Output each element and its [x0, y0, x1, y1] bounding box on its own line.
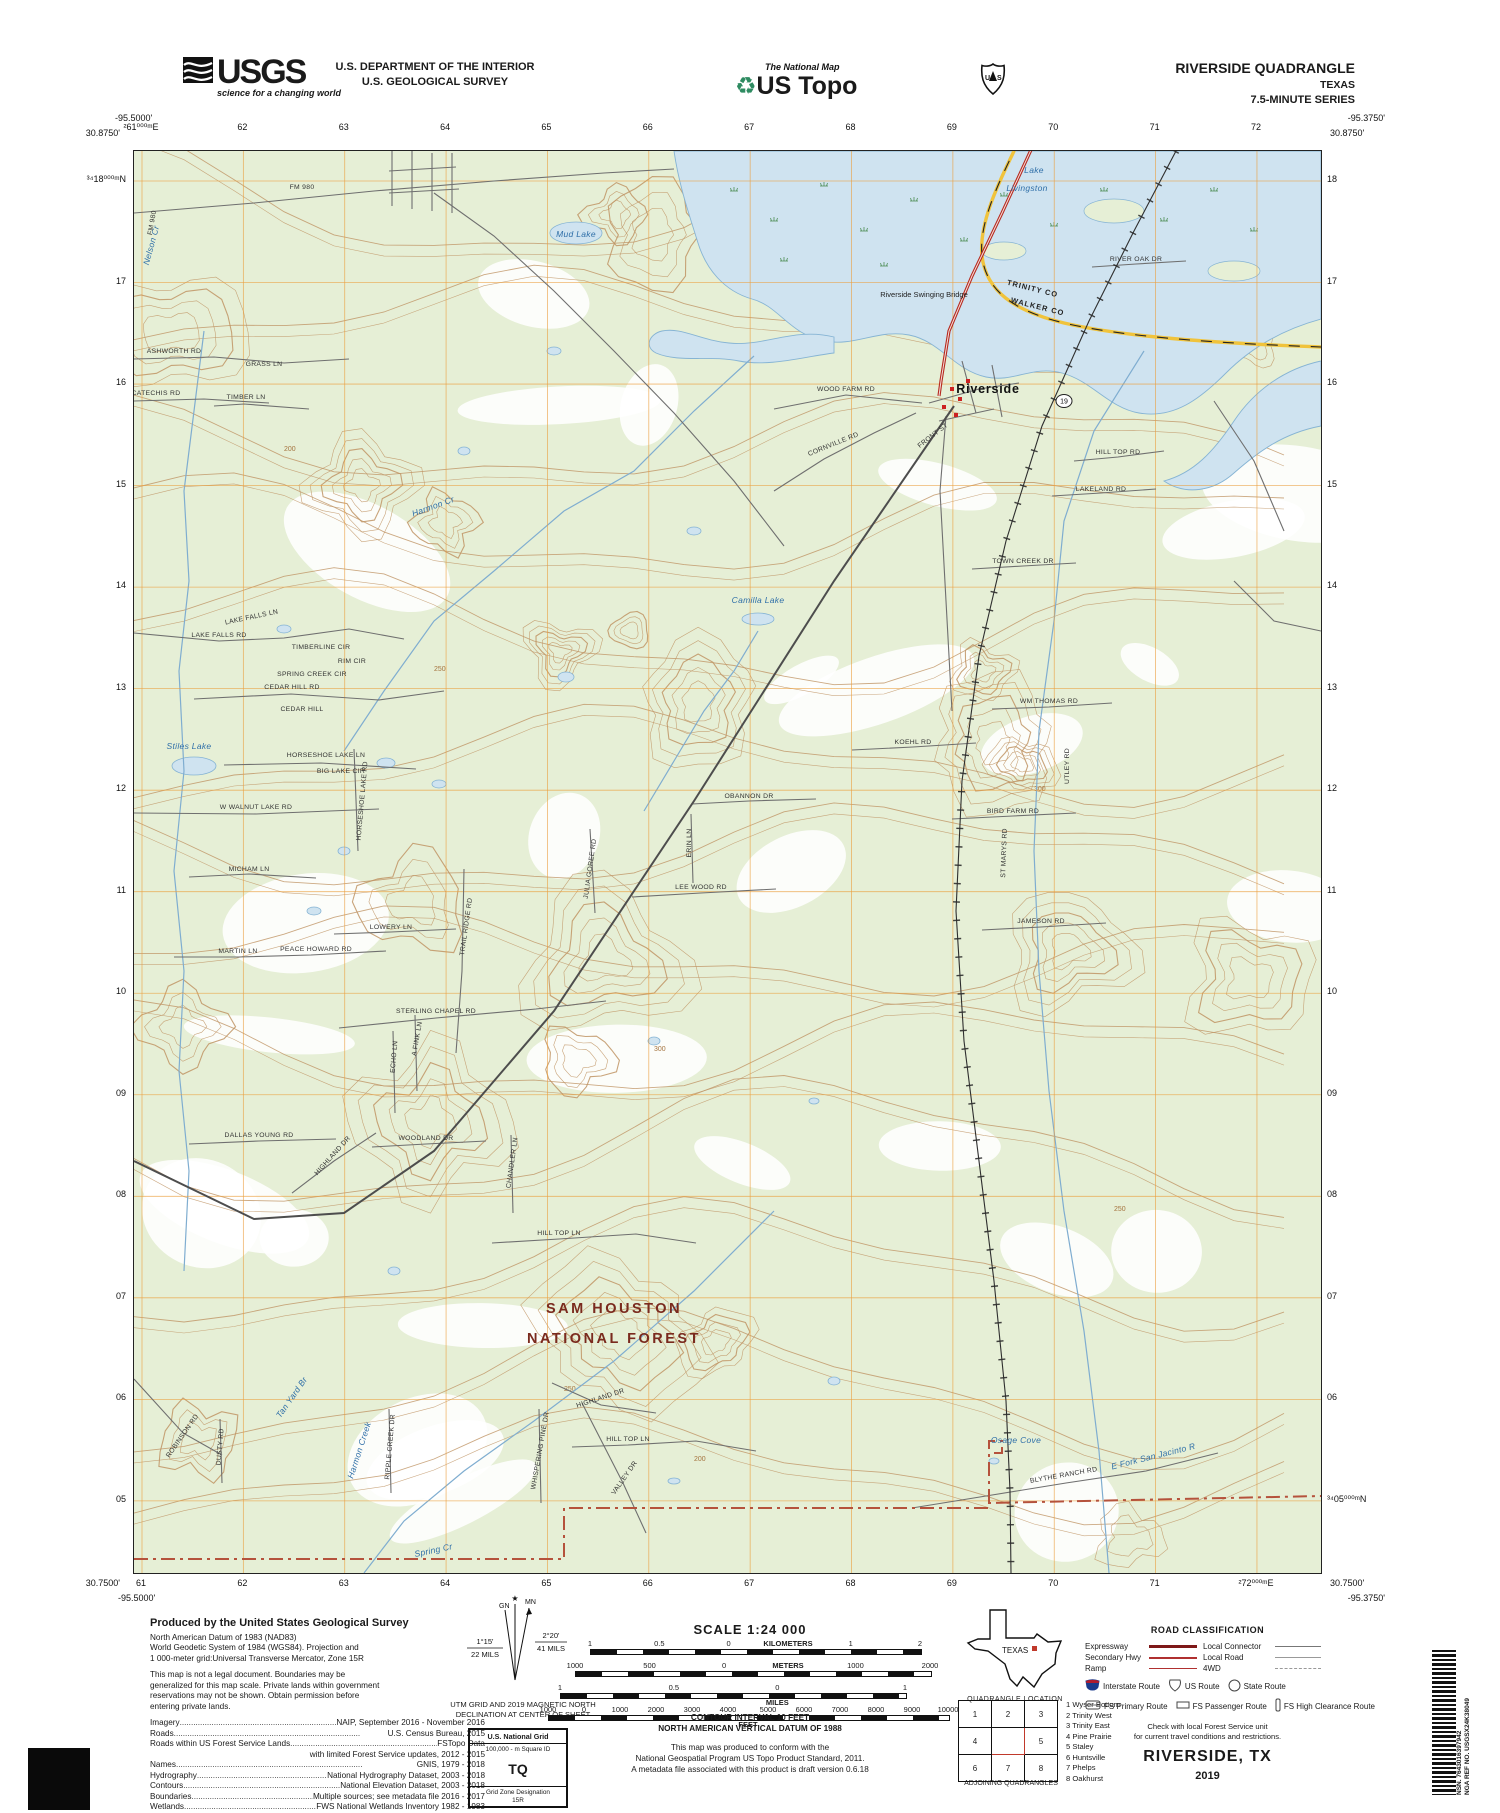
grid-coordinate-label: 30.8750' [86, 128, 120, 138]
quad-location-marker [1032, 1646, 1037, 1651]
shield-label: FS Passenger Route [1193, 1702, 1267, 1711]
grid-coordinate-label: 63 [339, 122, 349, 132]
pond [648, 1037, 660, 1045]
dot-leader: ........................................… [176, 1760, 417, 1771]
grid-coordinate-label: 62 [237, 122, 247, 132]
grid-coordinate-label: 67 [744, 122, 754, 132]
map-label: UTLEY RD [1064, 748, 1071, 784]
state-name: TEXAS [1000, 79, 1355, 91]
sheet-title: RIVERSIDE QUADRANGLE TEXAS 7.5-MINUTE SE… [1000, 60, 1355, 106]
quadrangle-name: RIVERSIDE QUADRANGLE [1000, 60, 1355, 76]
source-value: with limited Forest Service updates, 201… [310, 1750, 485, 1761]
map-label: Osage Cove [991, 1435, 1041, 1445]
scale-tick-label: 0 [775, 1683, 779, 1692]
grid-coordinate-label: 65 [541, 122, 551, 132]
grid-coordinate-label: 11 [1327, 885, 1336, 895]
shield-label: FS High Clearance Route [1284, 1702, 1375, 1711]
scale-tick-label: 500 [643, 1661, 656, 1670]
map-label: WM THOMAS RD [1020, 698, 1078, 705]
svg-text:22 MILS: 22 MILS [471, 1650, 499, 1659]
dot-leader: ........................................… [191, 1792, 313, 1803]
source-label: Roads within US Forest Service Lands [150, 1739, 290, 1750]
map-label: Riverside [956, 382, 1019, 396]
contour-elevation-label: 300 [1034, 786, 1046, 793]
grid-coordinate-label: ³⁴18⁰⁰⁰ᵐN [87, 174, 126, 185]
scale-tick-label: 1 [903, 1683, 907, 1692]
grid-coordinate-label: 06 [116, 1392, 126, 1402]
grid-coordinate-label: ²72⁰⁰⁰ᵐE [1238, 1578, 1273, 1589]
usng-zone-caption: Grid Zone Designation 15R [470, 1787, 566, 1805]
grid-coordinate-label: 17 [1327, 276, 1337, 286]
source-label: Names [150, 1760, 176, 1771]
grid-coordinate-label: 69 [947, 1578, 957, 1588]
footer-map-name: RIVERSIDE, TX [1085, 1748, 1330, 1766]
grid-coordinate-label: 16 [116, 377, 126, 387]
map-label: TOWN CREEK DR [992, 558, 1054, 565]
scale-block: SCALE 1:24 000 10.5012KILOMETERS10005000… [540, 1622, 960, 1725]
scale-bar [590, 1649, 922, 1655]
grid-coordinate-label: ³⁴05⁰⁰⁰ᵐN [1327, 1494, 1366, 1505]
map-label: LAKE FALLS RD [191, 632, 246, 639]
source-row: Names...................................… [150, 1760, 485, 1771]
grid-coordinate-label: 08 [1327, 1189, 1337, 1199]
road-class-sample-ramp [1149, 1668, 1197, 1669]
grid-coordinate-label: 09 [1327, 1088, 1337, 1098]
adjoining-quadrangles: 12345678 1 Wyser Bottom2 Trinity West3 T… [958, 1700, 1058, 1782]
road-class-label: Local Road [1203, 1653, 1275, 1662]
map-sheet: USGS science for a changing world U.S. D… [0, 0, 1500, 1813]
quadrangle-location: TEXAS QUADRANGLE LOCATION [950, 1608, 1080, 1703]
contour-elevation-label: 300 [654, 1046, 666, 1053]
department-heading: U.S. DEPARTMENT OF THE INTERIOR U.S. GEO… [310, 60, 560, 90]
map-label: STERLING CHAPEL RD [396, 1008, 476, 1015]
source-row: Contours................................… [150, 1781, 485, 1792]
svg-text:TEXAS: TEXAS [1002, 1646, 1028, 1655]
ustopo-logo: The National Map ♻ US Topo [735, 62, 857, 101]
pond [687, 527, 701, 535]
footer-map-year: 2019 [1085, 1770, 1330, 1782]
grid-coordinate-label: 12 [1327, 783, 1337, 793]
grid-coordinate-label: 07 [116, 1291, 126, 1301]
map-label: JAMESON RD [1017, 918, 1065, 925]
source-row: Hydrography.............................… [150, 1771, 485, 1782]
barcode-text: NSN. 7643016397942 NGA REF NO. USGSX24K3… [1456, 1650, 1472, 1795]
road-class-shield-item: FS Passenger Route [1176, 1701, 1267, 1711]
texas-outline-map: TEXAS [960, 1608, 1070, 1688]
map-canvas: 25030025015020030025020019LakeLivingston… [133, 150, 1322, 1574]
map-label: Mud Lake [556, 229, 596, 239]
source-label: Boundaries [150, 1792, 191, 1803]
grid-coordinate-label: 64 [440, 122, 450, 132]
grid-coordinate-label: 10 [116, 986, 126, 996]
barcode-block: NSN. 7643016397942 NGA REF NO. USGSX24K3… [1432, 1650, 1478, 1800]
pond [388, 1267, 400, 1275]
disclaimer-line: This map is not a legal document. Bounda… [150, 1670, 485, 1681]
scale-tick-label: 0 [722, 1661, 726, 1670]
contour-elevation-label: 250 [1114, 1206, 1126, 1213]
scale-bar-row: 1000500010002000METERS [540, 1659, 960, 1681]
map-label: Stiles Lake [167, 741, 212, 751]
pond [558, 672, 574, 682]
dot-leader: ........................................… [183, 1781, 340, 1792]
fs-passenger-icon [1176, 1701, 1190, 1711]
datum-line: North American Datum of 1983 (NAD83) [150, 1633, 485, 1644]
road-class-label: Expressway [1085, 1642, 1147, 1651]
dot-leader [150, 1750, 310, 1761]
adjoining-grid: 12345678 [958, 1700, 1058, 1782]
map-label: KOEHL RD [895, 739, 932, 746]
grid-coordinate-label: 07 [1327, 1291, 1337, 1301]
grid-coordinate-label: ²61⁰⁰⁰ᵐE [124, 122, 159, 133]
svg-text:MN: MN [525, 1599, 536, 1606]
grid-coordinate-label: 67 [744, 1578, 754, 1588]
pond [307, 907, 321, 915]
adjoining-cell: 3 [1025, 1701, 1058, 1728]
national-map-label: The National Map [765, 62, 857, 72]
source-value: National Elevation Dataset, 2003 - 2018 [340, 1781, 485, 1792]
pond [989, 1458, 999, 1464]
source-row: Boundaries..............................… [150, 1792, 485, 1803]
scale-tick-label: 1000 [567, 1661, 584, 1670]
pond [432, 780, 446, 788]
map-label: WOODLAND DR [398, 1135, 453, 1142]
conformance-line: National Geospatial Program US Topo Prod… [515, 1753, 985, 1764]
produced-by: Produced by the United States Geological… [150, 1618, 485, 1629]
map-label: Camilla Lake [732, 595, 785, 605]
barcode [1432, 1650, 1456, 1795]
grid-coordinate-label: 70 [1048, 1578, 1058, 1588]
map-label: HILL TOP RD [1096, 449, 1141, 456]
grid-coordinate-label: 12 [116, 783, 126, 793]
road-class-shield-item: Interstate Route [1085, 1679, 1160, 1694]
road-class-label: Secondary Hwy [1085, 1653, 1147, 1662]
dot-leader: ........................................… [180, 1718, 337, 1729]
grid-coordinate-label: 30.7500' [86, 1578, 120, 1588]
datum-line: 1 000-meter grid:Universal Transverse Me… [150, 1654, 485, 1665]
map-label: RIVER OAK DR [1110, 256, 1162, 263]
pond [547, 347, 561, 355]
grid-coordinate-label: 10 [1327, 986, 1337, 996]
pond [742, 613, 774, 625]
shield-label: US Route [1185, 1682, 1220, 1691]
map-label: ERIN LN [686, 829, 693, 858]
adjoining-cell: 6 [959, 1755, 992, 1782]
map-label: BIG LAKE CIR [317, 768, 365, 775]
contour-elevation-label: 200 [694, 1456, 706, 1463]
road-class-shield-item: FS High Clearance Route [1275, 1698, 1375, 1714]
map-label: LOWERY LN [370, 924, 413, 931]
grid-coordinate-label: 08 [116, 1189, 126, 1199]
grid-coordinate-label: 66 [643, 122, 653, 132]
pond [828, 1377, 840, 1385]
dot-leader: ........................................… [197, 1771, 327, 1782]
grid-coordinate-label: 65 [541, 1578, 551, 1588]
scale-tick-label: 0.5 [654, 1639, 664, 1648]
grid-coordinate-label: 71 [1150, 122, 1160, 132]
grid-coordinate-label: 70 [1048, 122, 1058, 132]
grid-coordinate-label: 09 [116, 1088, 126, 1098]
grid-coordinate-label: 16 [1327, 377, 1337, 387]
source-row: Roads...................................… [150, 1729, 485, 1740]
dept-line1: U.S. DEPARTMENT OF THE INTERIOR [310, 60, 560, 75]
map-label: TIMBERLINE CIR [292, 644, 351, 651]
grid-coordinate-label: 13 [1327, 682, 1337, 692]
map-label: DALLAS YOUNG RD [225, 1132, 294, 1139]
contour-interval-note: CONTOUR INTERVAL 10 FEET NORTH AMERICAN … [540, 1712, 960, 1734]
grid-coordinate-label: 15 [116, 479, 126, 489]
map-label: OBANNON DR [724, 793, 773, 800]
building-marker [950, 387, 954, 391]
source-row: Roads within US Forest Service Lands....… [150, 1739, 485, 1750]
dot-leader: ........................................… [184, 1802, 316, 1813]
source-label: Imagery [150, 1718, 180, 1729]
grid-coordinate-label: 68 [846, 1578, 856, 1588]
building-marker [954, 413, 958, 417]
map-label: NATIONAL FOREST [527, 1331, 701, 1347]
grid-coordinate-label: -95.3750' [1348, 113, 1385, 123]
map-label: SAM HOUSTON [546, 1301, 682, 1317]
svg-text:1°15': 1°15' [477, 1637, 495, 1646]
grid-coordinate-label: -95.3750' [1348, 1593, 1385, 1603]
map-label: SPRING CREEK CIR [277, 671, 347, 678]
road-class-row: ExpresswayLocal Connector [1085, 1641, 1330, 1652]
shield-label: FS Primary Route [1104, 1702, 1168, 1711]
grid-coordinate-label: -95.5000' [118, 1593, 155, 1603]
building-marker [958, 397, 962, 401]
road-class-shield-item: FS Primary Route [1085, 1700, 1168, 1712]
map-label: Livingston [1006, 183, 1047, 193]
map-label: HILL TOP LN [606, 1436, 649, 1443]
svg-text:GN: GN [499, 1603, 510, 1610]
source-label: Wetlands [150, 1802, 184, 1813]
route-shield-number: 19 [1060, 399, 1068, 406]
road-classification-title: ROAD CLASSIFICATION [1085, 1625, 1330, 1635]
grid-coordinate-label: 14 [1327, 580, 1337, 590]
ustopo-wordmark: US Topo [757, 72, 858, 101]
scale-unit-label: KILOMETERS [763, 1639, 812, 1648]
series-name: 7.5-MINUTE SERIES [1000, 94, 1355, 106]
contour-elevation-label: 200 [284, 446, 296, 453]
conformance-line: This map was produced to conform with th… [515, 1742, 985, 1753]
scale-tick-label: 0 [727, 1639, 731, 1648]
scale-bar [560, 1693, 907, 1699]
grid-coordinate-label: 05 [116, 1494, 126, 1504]
scale-bar [575, 1671, 932, 1677]
map-label: CATECHIS RD [134, 390, 180, 397]
map-label: Lake [1024, 165, 1044, 175]
adjoining-cell: 2 [992, 1701, 1025, 1728]
fs-primary-icon [1085, 1700, 1101, 1712]
topo-map-svg: 25030025015020030025020019LakeLivingston… [134, 151, 1321, 1573]
map-label: MARTIN LN [218, 948, 257, 955]
source-value: Multiple sources; see metadata file 2016… [313, 1792, 485, 1803]
grid-coordinate-label: 17 [116, 276, 126, 286]
state-route-circle [1228, 1679, 1241, 1694]
usgs-wave-icon [183, 57, 213, 87]
road-class-shield-item: US Route [1168, 1679, 1220, 1694]
map-label: PEACE HOWARD RD [280, 946, 352, 953]
map-label: RIM CIR [338, 658, 366, 665]
fs-high-icon [1275, 1698, 1281, 1714]
road-class-sample-connector [1275, 1646, 1321, 1647]
adjoining-cell: 5 [1025, 1728, 1058, 1755]
scale-title: SCALE 1:24 000 [540, 1622, 960, 1637]
dept-line2: U.S. GEOLOGICAL SURVEY [310, 75, 560, 90]
corner-fill [28, 1748, 90, 1810]
road-class-sample-fourwd [1275, 1668, 1321, 1669]
shield-label: State Route [1244, 1682, 1286, 1691]
source-row: Imagery.................................… [150, 1718, 485, 1729]
grid-coordinate-label: 06 [1327, 1392, 1337, 1402]
grid-coordinate-label: 15 [1327, 479, 1337, 489]
road-classification: ROAD CLASSIFICATION ExpresswayLocal Conn… [1085, 1625, 1330, 1741]
grid-coordinate-label: 62 [237, 1578, 247, 1588]
pond [338, 847, 350, 855]
grid-coordinate-label: 71 [1150, 1578, 1160, 1588]
source-value: NAIP, September 2016 - November 2016 [336, 1718, 485, 1729]
grid-coordinate-label: 11 [117, 885, 126, 895]
conformance-note: This map was produced to conform with th… [515, 1742, 985, 1775]
svg-text:U: U [985, 75, 990, 82]
grid-coordinate-label: 18 [1327, 174, 1337, 184]
grid-coordinate-label: 68 [846, 122, 856, 132]
source-row: with limited Forest Service updates, 201… [150, 1750, 485, 1761]
conformance-line: A metadata file associated with this pro… [515, 1764, 985, 1775]
grid-coordinate-label: 30.8750' [1330, 128, 1364, 138]
recycle-arrows-icon: ♻ [735, 75, 757, 99]
pond [458, 447, 470, 455]
map-label: ASHWORTH RD [147, 348, 202, 355]
forest-service-note: Check with local Forest Service unit for… [1085, 1722, 1330, 1741]
interstate-shield [1085, 1679, 1100, 1694]
map-label: TIMBER LN [227, 394, 266, 401]
adjoining-caption: ADJOINING QUADRANGLES [946, 1780, 1076, 1787]
pond [172, 757, 216, 775]
pond [277, 625, 291, 633]
grid-coordinate-label: 13 [116, 682, 126, 692]
map-label: WOOD FARM RD [817, 386, 875, 393]
map-label: CEDAR HILL RD [264, 684, 319, 691]
road-class-sample-local [1275, 1657, 1321, 1658]
scale-unit-label: METERS [772, 1661, 803, 1670]
map-label: BIRD FARM RD [987, 808, 1039, 815]
adjoining-cell: 4 [959, 1728, 992, 1755]
grid-coordinate-label: 61 [136, 1578, 146, 1588]
road-class-row: Secondary HwyLocal Road [1085, 1652, 1330, 1663]
svg-text:★: ★ [511, 1594, 518, 1603]
road-class-sample-expressway [1149, 1645, 1197, 1648]
map-label: GRASS LN [246, 361, 283, 368]
road-class-shield-item: State Route [1228, 1679, 1286, 1694]
grid-coordinate-label: 66 [643, 1578, 653, 1588]
map-label: MICHAM LN [229, 866, 270, 873]
map-label: W WALNUT LAKE RD [220, 804, 292, 811]
map-label: LEE WOOD RD [675, 884, 727, 891]
source-value: National Hydrography Dataset, 2003 - 201… [327, 1771, 485, 1782]
road-class-sample-secondary [1149, 1657, 1197, 1659]
road-class-label: Ramp [1085, 1664, 1147, 1673]
road-class-row: Ramp4WD [1085, 1663, 1330, 1674]
adjoining-cell: 8 [1025, 1755, 1058, 1782]
grid-coordinate-label: 64 [440, 1578, 450, 1588]
scale-tick-label: 1 [588, 1639, 592, 1648]
shield-label: Interstate Route [1103, 1682, 1160, 1691]
source-label: Contours [150, 1781, 183, 1792]
us-route-shield [1168, 1679, 1182, 1694]
scale-tick-label: 0.5 [669, 1683, 679, 1692]
scale-tick-label: 1 [558, 1683, 562, 1692]
road-class-label: 4WD [1203, 1664, 1275, 1673]
map-label: CEDAR HILL [280, 706, 323, 713]
road-class-shield-row: Interstate RouteUS RouteState Route [1085, 1679, 1330, 1694]
road-class-label: Local Connector [1203, 1642, 1275, 1651]
disclaimer-line: generalized for this map scale. Private … [150, 1681, 485, 1692]
datum-line: World Geodetic System of 1984 (WGS84). P… [150, 1643, 485, 1654]
map-label: FM 980 [290, 184, 315, 191]
adjoining-cell: 1 [959, 1701, 992, 1728]
map-label: HILL TOP LN [537, 1230, 580, 1237]
source-label: Roads [150, 1729, 174, 1740]
source-row: Wetlands................................… [150, 1802, 485, 1813]
road-class-shield-row: FS Primary RouteFS Passenger RouteFS Hig… [1085, 1698, 1330, 1714]
map-label: LAKELAND RD [1076, 486, 1127, 493]
grid-coordinate-label: 14 [116, 580, 126, 590]
dot-leader: ........................................… [290, 1739, 437, 1750]
source-label: Hydrography [150, 1771, 197, 1782]
scale-bar-row: 10.501MILES [540, 1681, 960, 1703]
scale-tick-label: 1000 [847, 1661, 864, 1670]
grid-coordinate-label: 72 [1251, 122, 1261, 132]
grid-coordinate-label: 63 [339, 1578, 349, 1588]
source-value: FWS National Wetlands Inventory 1982 - 1… [316, 1802, 485, 1813]
adjoining-cell [992, 1728, 1025, 1755]
grid-coordinate-label: 30.7500' [1330, 1578, 1364, 1588]
dot-leader: ........................................… [174, 1729, 388, 1740]
grid-coordinate-label: 69 [947, 122, 957, 132]
contour-elevation-label: 250 [434, 666, 446, 673]
map-label: Riverside Swinging Bridge [880, 290, 968, 299]
pond [809, 1098, 819, 1104]
scale-tick-label: 1 [849, 1639, 853, 1648]
building-marker [942, 405, 946, 409]
scale-tick-label: 2000 [922, 1661, 939, 1670]
adjoining-cell: 7 [992, 1755, 1025, 1782]
pond [668, 1478, 680, 1484]
scale-bar-row: 10.5012KILOMETERS [540, 1637, 960, 1659]
grid-coordinate-label: -95.5000' [115, 113, 152, 123]
scale-tick-label: 2 [918, 1639, 922, 1648]
map-label: HORSESHOE LAKE LN [287, 752, 365, 759]
